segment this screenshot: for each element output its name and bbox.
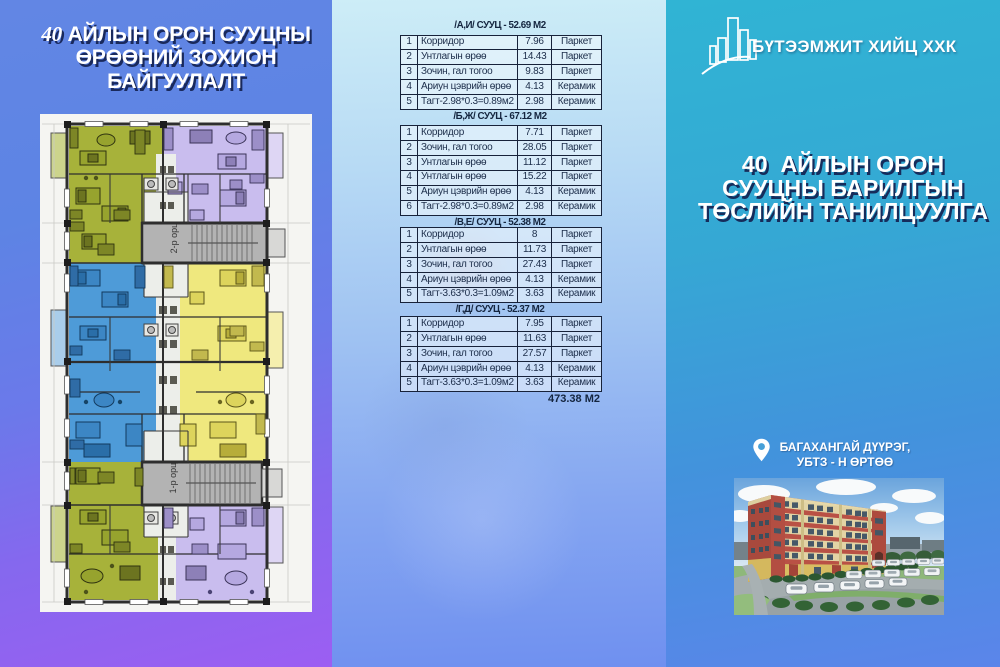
svg-text:2-р орц: 2-р орц <box>169 223 179 254</box>
svg-text:1-р орц: 1-р орц <box>168 463 178 494</box>
